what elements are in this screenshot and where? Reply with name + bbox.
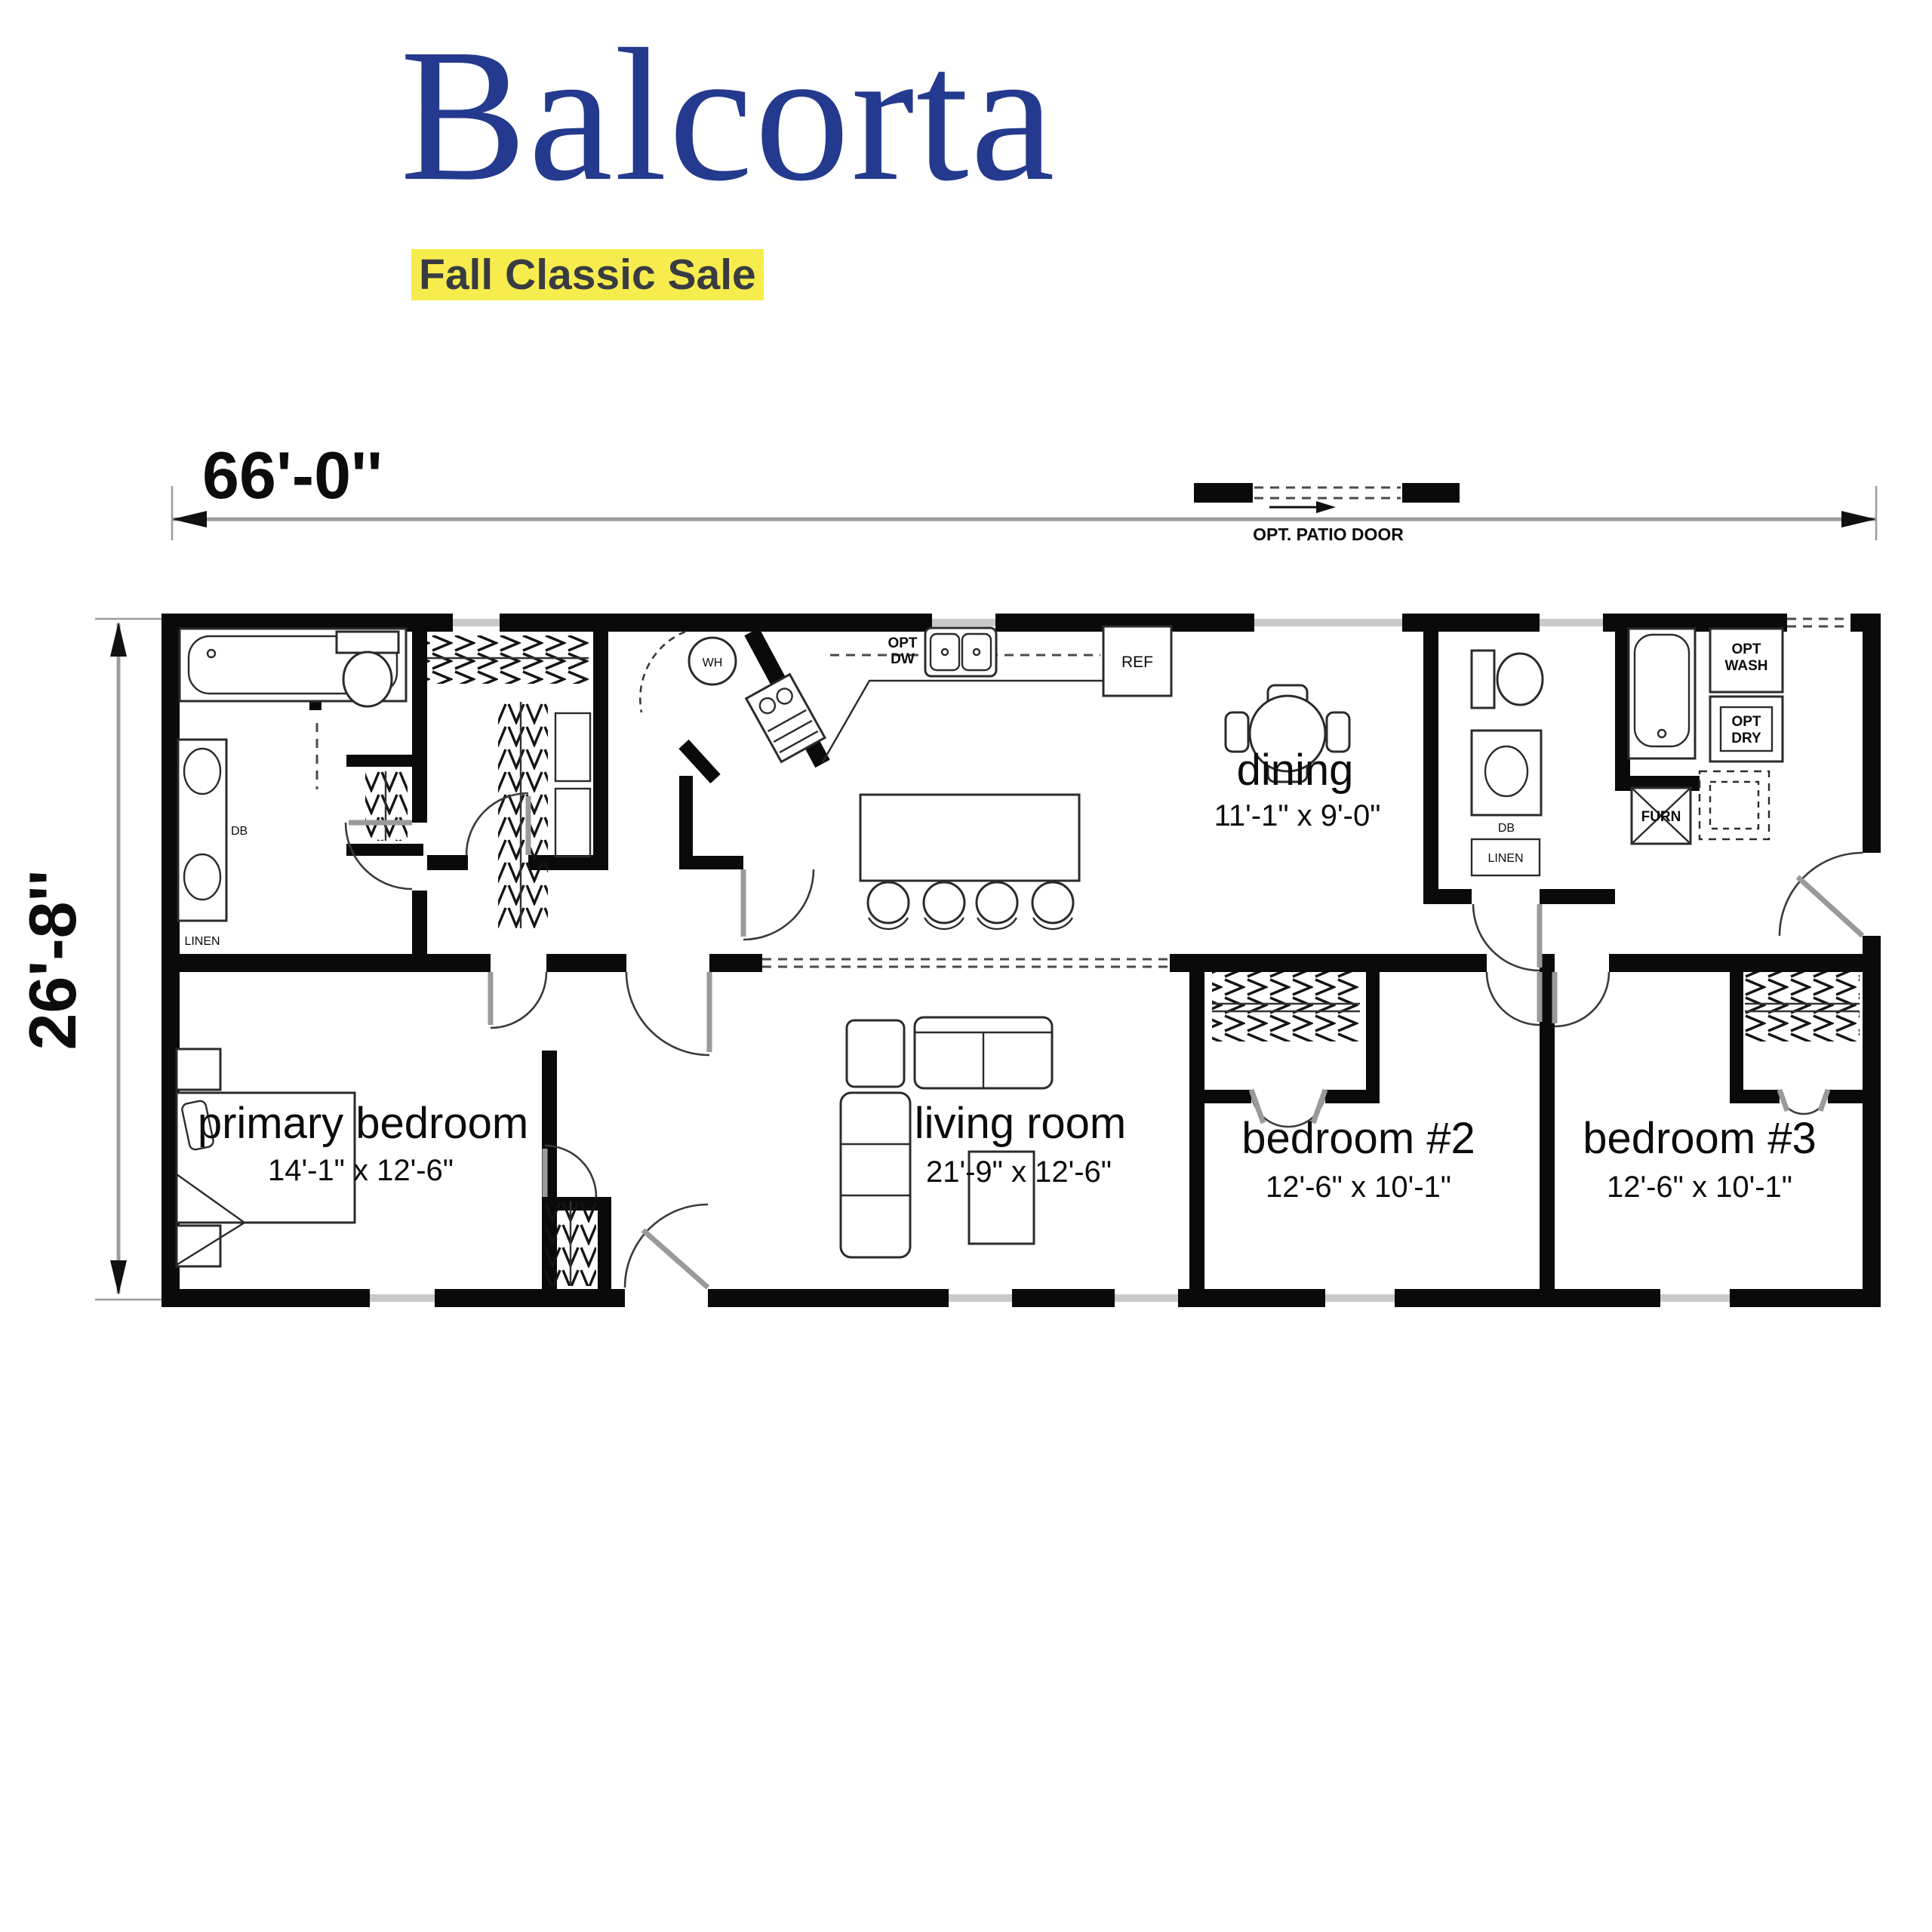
opt-square-inner bbox=[1710, 782, 1758, 829]
bedroom2-closet-hatch bbox=[1212, 972, 1360, 1041]
washer-icon: OPT WASH bbox=[1710, 629, 1783, 692]
vanity2-icon bbox=[1472, 731, 1541, 815]
bedroom3-label: bedroom #3 bbox=[1583, 1114, 1817, 1163]
dishwasher-label-1: OPT bbox=[888, 635, 917, 651]
dim-arrow-right bbox=[1841, 511, 1876, 528]
floor-plan: 66'-0'' 26'-8'' OPT. PATIO DOOR bbox=[0, 0, 1932, 1932]
hall-door bbox=[626, 972, 709, 1055]
dining-room: dining 11'-1" x 9'-0" bbox=[1214, 685, 1381, 832]
dining-size: 11'-1" x 9'-0" bbox=[1214, 799, 1381, 832]
dim-arrow-down bbox=[110, 1260, 127, 1295]
washer-label-1: OPT bbox=[1731, 641, 1761, 657]
dim-arrow-up bbox=[110, 622, 127, 657]
bath-nook-hatch bbox=[365, 771, 408, 841]
kitchen: WH OPT DW bbox=[640, 626, 1171, 929]
washer-label-2: WASH bbox=[1725, 658, 1768, 674]
water-heater-label: WH bbox=[703, 657, 723, 669]
sofa-icon bbox=[841, 1093, 910, 1257]
patio-door-annotation: OPT. PATIO DOOR bbox=[1194, 483, 1460, 544]
dim-width-label: 66'-0'' bbox=[202, 438, 383, 512]
water-heater-icon: WH bbox=[689, 638, 736, 685]
patio-door-label: OPT. PATIO DOOR bbox=[1253, 525, 1404, 544]
closet-top-hatch bbox=[427, 635, 589, 684]
bedroom3-door bbox=[1555, 972, 1609, 1026]
patio-jamb-left bbox=[1194, 483, 1253, 503]
utility-room: OPT WASH OPT DRY FURN bbox=[1629, 629, 1783, 844]
vanity-label: DB bbox=[231, 825, 248, 838]
walk-in-closet-hatch bbox=[498, 702, 590, 928]
page: Balcorta Fall Classic Sale 66'-0'' 26'-8… bbox=[0, 0, 1932, 1932]
tub2-icon bbox=[1629, 629, 1695, 758]
dryer-label-1: OPT bbox=[1731, 714, 1761, 730]
bedroom3-closet-doors bbox=[1780, 1090, 1828, 1114]
kitchen-sink-icon bbox=[925, 628, 996, 676]
furnace-label: FURN bbox=[1641, 809, 1681, 825]
dishwasher-label-2: DW bbox=[891, 651, 915, 667]
loveseat-icon bbox=[915, 1017, 1052, 1088]
dim-height-label: 26'-8'' bbox=[15, 870, 90, 1051]
toilet2-icon bbox=[1472, 651, 1543, 708]
second-bath: DB LINEN bbox=[1472, 651, 1543, 875]
bedroom2-size: 12'-6" x 10'-1" bbox=[1266, 1171, 1451, 1204]
primary-bedroom-size: 14'-1" x 12'-6" bbox=[268, 1154, 454, 1187]
dryer-label-2: DRY bbox=[1731, 731, 1761, 746]
nightstand-icon bbox=[177, 1049, 220, 1090]
vanity2-label: DB bbox=[1498, 822, 1515, 835]
bedroom2-label: bedroom #2 bbox=[1241, 1114, 1475, 1163]
patio-arrow-icon bbox=[1316, 501, 1336, 513]
furnace-icon: FURN bbox=[1632, 788, 1690, 844]
kitchen-opt-door-arc bbox=[640, 632, 685, 712]
dryer-icon: OPT DRY bbox=[1710, 697, 1783, 761]
bedroom2-door bbox=[1487, 972, 1540, 1025]
linen-label: LINEN bbox=[184, 935, 220, 948]
kitchen-island-icon bbox=[860, 795, 1079, 929]
dim-arrow-left bbox=[172, 511, 207, 528]
primary-bedroom-door bbox=[491, 972, 546, 1028]
front-entry-door bbox=[625, 1204, 708, 1287]
bedroom3-closet-hatch bbox=[1745, 972, 1860, 1041]
hall-closet-hatch bbox=[545, 1201, 596, 1286]
armchair-icon bbox=[847, 1020, 904, 1087]
living-room-label: living room bbox=[915, 1099, 1126, 1148]
linen2-label: LINEN bbox=[1487, 852, 1523, 865]
patio-jamb-right bbox=[1402, 483, 1460, 503]
bedroom3-size: 12'-6" x 10'-1" bbox=[1607, 1171, 1792, 1204]
counter-edge bbox=[823, 681, 1103, 762]
living-room-size: 21'-9" x 12'-6" bbox=[926, 1155, 1112, 1189]
refrigerator-label: REF bbox=[1121, 654, 1153, 671]
dining-label: dining bbox=[1237, 746, 1354, 795]
utility-exterior-door bbox=[1780, 853, 1863, 936]
double-vanity-icon bbox=[178, 740, 226, 921]
kitchen-hall-door bbox=[743, 869, 814, 940]
primary-bedroom-label: primary bedroom bbox=[198, 1099, 528, 1148]
refrigerator-icon: REF bbox=[1103, 626, 1171, 696]
